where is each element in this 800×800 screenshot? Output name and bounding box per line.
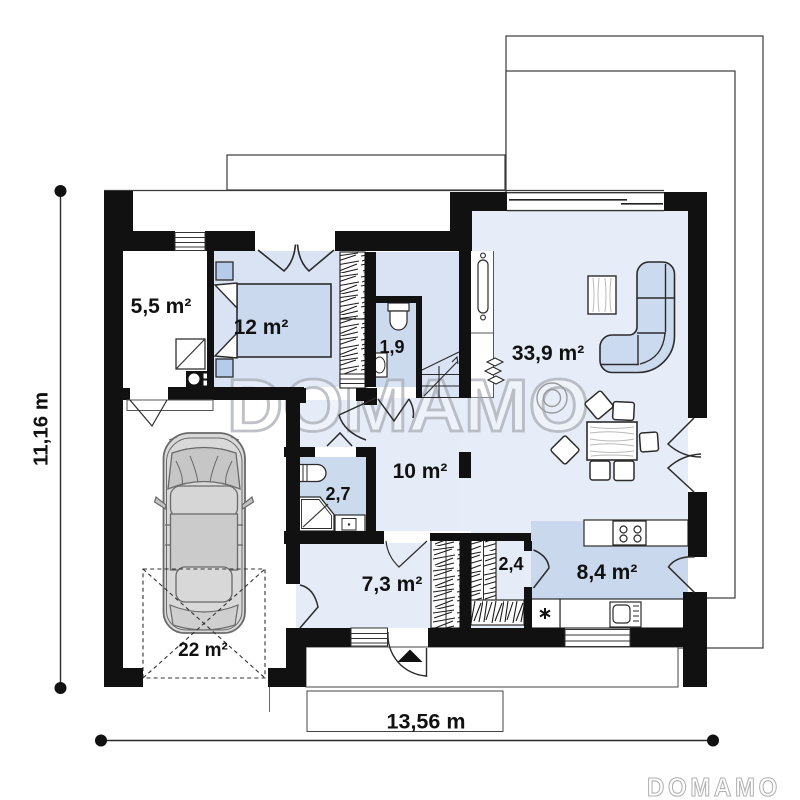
svg-text:13,56 m: 13,56 m [387, 710, 466, 734]
svg-text:5,5 m²: 5,5 m² [131, 295, 192, 318]
svg-text:8,4 m²: 8,4 m² [577, 561, 638, 584]
svg-text:7,3 m²: 7,3 m² [362, 573, 423, 596]
svg-text:DOMAMO: DOMAMO [647, 772, 781, 800]
svg-text:33,9 m²: 33,9 m² [512, 342, 584, 365]
svg-text:12 m²: 12 m² [234, 316, 289, 339]
svg-text:DOMAMO: DOMAMO [227, 364, 589, 447]
svg-text:2,4: 2,4 [498, 554, 523, 574]
svg-text:22 m²: 22 m² [178, 640, 228, 661]
svg-text:1,9: 1,9 [379, 337, 404, 357]
svg-text:11,16 m: 11,16 m [30, 392, 53, 466]
svg-text:2,7: 2,7 [325, 484, 350, 504]
svg-text:10 m²: 10 m² [393, 460, 448, 483]
